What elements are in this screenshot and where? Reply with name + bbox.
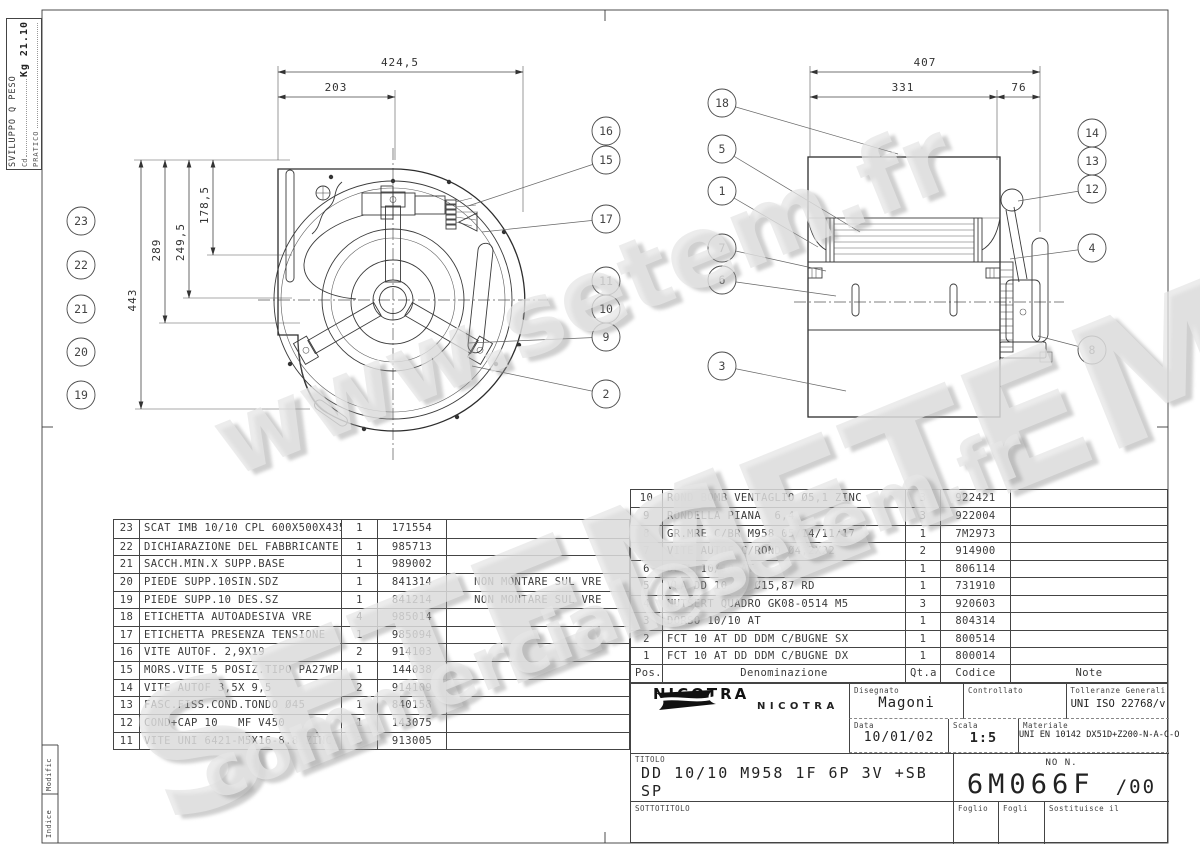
balloon: 7 [708, 234, 736, 262]
part-denominazione: FCT 10 AT DD DDM C/BUGNE SX [663, 631, 906, 647]
disegnato-label: Disegnato [850, 684, 963, 695]
part-qty: 2 [906, 543, 941, 559]
part-codice: 171554 [378, 520, 447, 538]
motor-assembly [1000, 189, 1052, 362]
svg-text:20: 20 [74, 345, 88, 359]
svg-text:10: 10 [599, 302, 613, 316]
part-note [1011, 613, 1167, 629]
part-denominazione: MORS.VITE 5 POSIZ.TIPO PA27WP [140, 662, 342, 679]
part-note [1011, 596, 1167, 612]
part-qty: 2 [342, 644, 378, 661]
parts-row: 3 DORSO 10/10 AT 1 804314 [631, 612, 1167, 629]
part-pos: 8 [631, 526, 663, 542]
part-codice: 7M2973 [941, 526, 1011, 542]
svg-text:17: 17 [599, 212, 613, 226]
part-pos: 5 [631, 578, 663, 594]
svg-text:4: 4 [1089, 241, 1096, 255]
header-note: Note [1011, 665, 1167, 681]
parts-row: 23 SCAT IMB 10/10 CPL 600X500X435 1 1715… [114, 520, 629, 538]
balloon: 9 [592, 323, 620, 351]
parts-row: 7 VITE AUTOF C/ROND Ø4,2X22 2 914900 [631, 542, 1167, 559]
balloon: 20 [67, 338, 95, 366]
part-denominazione: RONDELLA PIANA 6,4 [663, 508, 906, 524]
part-denominazione: ETICHETTA AUTOADESIVA VRE [140, 609, 342, 626]
svg-text:16: 16 [599, 124, 613, 138]
svg-text:2: 2 [603, 387, 610, 401]
scala-cell: Scala 1:5 [948, 719, 1018, 753]
svg-text:21: 21 [74, 302, 88, 316]
part-codice: 920603 [941, 596, 1011, 612]
balloon: 6 [708, 266, 736, 294]
part-qty: 2 [342, 680, 378, 697]
parts-row: 14 VITE AUTOF 3,5X 9,5 2 914109 [114, 679, 629, 697]
parts-row: 5 VLA DD 10/10 Ø15,87 RD 1 731910 [631, 577, 1167, 594]
svg-text:7: 7 [719, 241, 726, 255]
controllato-label: Controllato [964, 684, 1066, 695]
part-note: NON MONTARE SUL VRE [447, 592, 629, 609]
part-pos: 7 [631, 543, 663, 559]
balloon: 8 [1078, 336, 1106, 364]
part-note [447, 520, 629, 538]
part-pos: 14 [114, 680, 140, 697]
part-pos: 12 [114, 715, 140, 732]
part-codice: 913005 [378, 733, 447, 750]
part-qty: 1 [342, 592, 378, 609]
part-note [447, 539, 629, 556]
part-note [447, 627, 629, 644]
svg-text:12: 12 [1085, 182, 1099, 196]
part-denominazione: NUTSERT QUADRO GK08-0514 M5 [663, 596, 906, 612]
part-pos: 20 [114, 574, 140, 591]
part-pos: 22 [114, 539, 140, 556]
scala-label: Scala [949, 719, 1018, 730]
part-pos: 19 [114, 592, 140, 609]
balloon: 21 [67, 295, 95, 323]
warning-triangle-icon [459, 213, 477, 231]
part-codice: 800514 [941, 631, 1011, 647]
svg-text:3: 3 [719, 359, 726, 373]
part-qty: 3 [906, 508, 941, 524]
part-pos: 15 [114, 662, 140, 679]
part-denominazione: VITE AUTOF 3,5X 9,5 [140, 680, 342, 697]
side-view-drawing [794, 157, 1064, 417]
impeller-drum [826, 218, 982, 262]
part-note [1011, 578, 1167, 594]
svg-text:19: 19 [74, 388, 88, 402]
balloon: 2 [592, 380, 620, 408]
notes-cell [631, 801, 953, 844]
balloon: 18 [708, 89, 736, 117]
parts-row: 11 VITE UNI 6421-M5X16-8.8 ZINC. 3 91300… [114, 732, 629, 750]
data-label: Data [850, 719, 948, 730]
part-denominazione: COND+CAP 10 MF V450 [140, 715, 342, 732]
part-codice: 989002 [378, 556, 447, 573]
part-denominazione: SCAT IMB 10/10 CPL 600X500X435 [140, 520, 342, 538]
data-cell: Data 10/01/02 [849, 719, 948, 753]
side-view-dimensions: 407 331 76 [810, 56, 1040, 232]
capacitor [362, 186, 445, 219]
svg-text:8: 8 [1089, 343, 1096, 357]
svg-text:15: 15 [599, 153, 613, 167]
part-pos: 4 [631, 596, 663, 612]
part-codice: 841214 [378, 592, 447, 609]
part-denominazione: ETICHETTA PRESENZA TENSIONE [140, 627, 342, 644]
part-note [1011, 631, 1167, 647]
dim-443: 443 [126, 289, 139, 312]
part-pos: 17 [114, 627, 140, 644]
titolo-value: DD 10/10 M958 1F 6P 3V +SB SP [631, 764, 953, 802]
part-codice: 922004 [941, 508, 1011, 524]
part-note [447, 697, 629, 714]
part-qty: 1 [342, 556, 378, 573]
part-qty: 3 [342, 733, 378, 750]
svg-text:14: 14 [1085, 126, 1099, 140]
part-note [447, 680, 629, 697]
part-pos: 23 [114, 520, 140, 538]
balloon: 4 [1078, 234, 1106, 262]
part-qty: 3 [906, 596, 941, 612]
part-note [1011, 561, 1167, 577]
drawing-number: 6M066F /00 [954, 769, 1169, 800]
parts-row: 22 DICHIARAZIONE DEL FABBRICANTE 1 98571… [114, 538, 629, 556]
part-qty: 1 [342, 715, 378, 732]
dim-407: 407 [914, 56, 937, 69]
part-codice: 804314 [941, 613, 1011, 629]
motor-cable [304, 215, 364, 299]
parts-row: 12 COND+CAP 10 MF V450 1 143075 [114, 714, 629, 732]
part-denominazione: FASC.FISS.COND.TONDO Ø45 [140, 697, 342, 714]
part-qty: 1 [342, 662, 378, 679]
modific-label: Modific [45, 758, 53, 791]
part-note: NON MONTARE SUL VRE [447, 574, 629, 591]
title-block: NICOTRA NICOTRA Disegnato Magoni Control… [630, 683, 1168, 843]
callout-balloons: 16 15 17 11 10 9 2 23 22 21 20 19 18 5 1… [67, 89, 1106, 409]
part-qty: 1 [906, 526, 941, 542]
part-codice: 806114 [941, 561, 1011, 577]
part-note [1011, 508, 1167, 524]
drawing-sheet: 424,5 203 443 289 249,5 178,5 [0, 0, 1200, 849]
dim-331: 331 [892, 81, 915, 94]
part-pos: 18 [114, 609, 140, 626]
svg-text:6: 6 [719, 273, 726, 287]
part-denominazione: ROND BOMB VENTAGLIO Ø5,1 ZINC [663, 490, 906, 507]
drawing-number-label: NO N. [954, 754, 1169, 768]
cd-label: Cd [21, 159, 29, 167]
part-note [447, 609, 629, 626]
svg-text:22: 22 [74, 258, 88, 272]
parts-row: 2 FCT 10 AT DD DDM C/BUGNE SX 1 800514 [631, 630, 1167, 647]
part-qty: 1 [906, 631, 941, 647]
part-denominazione: SACCH.MIN.X SUPP.BASE [140, 556, 342, 573]
scala-value: 1:5 [949, 730, 1018, 746]
part-denominazione: VLA DD 10/10 Ø15,87 RD [663, 578, 906, 594]
part-note [447, 644, 629, 661]
part-codice: 985713 [378, 539, 447, 556]
part-qty: 1 [906, 613, 941, 629]
fogli-cell: Fogli [998, 801, 1044, 844]
pratico-label: PRATICO [32, 130, 40, 167]
part-pos: 11 [114, 733, 140, 750]
dim-178: 178,5 [198, 186, 211, 224]
svg-text:18: 18 [715, 96, 729, 110]
balloon: 15 [592, 146, 620, 174]
weight-info-text: SVILUPPO Q PESO CdKg 21.10 PRATICO [7, 19, 41, 169]
part-denominazione: VITE UNI 6421-M5X16-8.8 ZINC. [140, 733, 342, 750]
balloon: 11 [592, 267, 620, 295]
parts-row: 9 RONDELLA PIANA 6,4 3 922004 [631, 507, 1167, 524]
part-qty: 4 [342, 609, 378, 626]
parts-row: 20 PIEDE SUPP.10SIN.SDZ 1 841314 NON MON… [114, 573, 629, 591]
balloon: 3 [708, 352, 736, 380]
materiale-cell: Materiale UNI EN 10142 DX51D+Z200-N-A-C-… [1018, 719, 1169, 753]
part-codice: 841314 [378, 574, 447, 591]
parts-table-left: 23 SCAT IMB 10/10 CPL 600X500X435 1 1715… [113, 519, 630, 750]
part-codice: 840158 [378, 697, 447, 714]
parts-row: 21 SACCH.MIN.X SUPP.BASE 1 989002 [114, 555, 629, 573]
part-qty: 1 [906, 648, 941, 664]
parts-row: 18 ETICHETTA AUTOADESIVA VRE 4 985014 [114, 608, 629, 626]
part-note [1011, 648, 1167, 664]
part-codice: 985014 [378, 609, 447, 626]
weight-value: Kg 21.10 [19, 21, 30, 77]
part-pos: 21 [114, 556, 140, 573]
indice-label: Indice [45, 810, 53, 838]
tolleranze-value: UNI ISO 22768/v [1067, 698, 1169, 710]
dim-424: 424,5 [381, 56, 419, 69]
balloon: 19 [67, 381, 95, 409]
header-codice: Codice [941, 665, 1011, 681]
balloon: 14 [1078, 119, 1106, 147]
data-value: 10/01/02 [850, 730, 948, 745]
disegnato-cell: Disegnato Magoni [849, 684, 963, 719]
part-codice: 800014 [941, 648, 1011, 664]
part-codice: 922421 [941, 490, 1011, 507]
part-qty: 1 [906, 561, 941, 577]
part-pos: 10 [631, 490, 663, 507]
parts-row: 8 GR.MRE C/BR M958 05/14/11/17 1 7M2973 [631, 525, 1167, 542]
part-codice: 731910 [941, 578, 1011, 594]
balloon: 23 [67, 207, 95, 235]
revision-number: /00 [1116, 776, 1156, 798]
part-denominazione: PIEDE SUPP.10 DES.SZ [140, 592, 342, 609]
part-pos: 3 [631, 613, 663, 629]
svg-text:11: 11 [599, 274, 613, 288]
balloon: 17 [592, 205, 620, 233]
svg-text:13: 13 [1085, 154, 1099, 168]
part-denominazione: PIEDE SUPP.10SIN.SDZ [140, 574, 342, 591]
parts-row: 15 MORS.VITE 5 POSIZ.TIPO PA27WP 1 14403… [114, 661, 629, 679]
dim-289: 289 [150, 239, 163, 262]
part-pos: 1 [631, 648, 663, 664]
nicotra-secondary-wordmark: NICOTRA [757, 701, 839, 712]
svg-text:5: 5 [719, 142, 726, 156]
parts-row: 1 FCT 10 AT DD DDM C/BUGNE DX 1 800014 [631, 647, 1167, 664]
balloon: 12 [1078, 175, 1106, 203]
controllato-cell: Controllato [963, 684, 1066, 719]
part-denominazione: DICHIARAZIONE DEL FABBRICANTE [140, 539, 342, 556]
part-qty: 1 [342, 520, 378, 538]
parts-row: 13 FASC.FISS.COND.TONDO Ø45 1 840158 [114, 696, 629, 714]
parts-row: 4 NUTSERT QUADRO GK08-0514 M5 3 920603 [631, 595, 1167, 612]
part-pos: 9 [631, 508, 663, 524]
foglio-label: Foglio [954, 802, 998, 813]
balloon: 10 [592, 295, 620, 323]
parts-row: 17 ETICHETTA PRESENZA TENSIONE 1 985094 [114, 626, 629, 644]
balloon: 22 [67, 251, 95, 279]
part-codice: 144038 [378, 662, 447, 679]
part-note [447, 662, 629, 679]
parts-row: 6 DEFL 10/10 AT 1 806114 [631, 560, 1167, 577]
part-note [447, 715, 629, 732]
part-qty: 1 [342, 697, 378, 714]
part-denominazione: DEFL 10/10 AT [663, 561, 906, 577]
balloon: 1 [708, 177, 736, 205]
balloon: 5 [708, 135, 736, 163]
tolleranze-label: Tolleranze Generali [1067, 684, 1169, 695]
part-note [1011, 490, 1167, 507]
dim-203: 203 [325, 81, 348, 94]
part-note [447, 733, 629, 750]
part-note [447, 556, 629, 573]
part-codice: 914900 [941, 543, 1011, 559]
parts-row: 19 PIEDE SUPP.10 DES.SZ 1 841214 NON MON… [114, 591, 629, 609]
part-note [1011, 543, 1167, 559]
logo-cell: NICOTRA NICOTRA [631, 684, 849, 753]
part-denominazione: DORSO 10/10 AT [663, 613, 906, 629]
parts-row: 10 ROND BOMB VENTAGLIO Ø5,1 ZINC 3 92242… [631, 490, 1167, 507]
dim-76: 76 [1011, 81, 1026, 94]
svg-text:1: 1 [719, 184, 726, 198]
part-codice: 985094 [378, 627, 447, 644]
sostituisce-cell: Sostituisce il [1044, 801, 1169, 844]
header-qty: Qt.a [906, 665, 941, 681]
titolo-label: TITOLO [631, 754, 953, 764]
fogli-label: Fogli [999, 802, 1044, 813]
parts-header-row: Pos. Denominazione Qt.a Codice Note [631, 664, 1167, 681]
part-denominazione: VITE AUTOF C/ROND Ø4,2X22 [663, 543, 906, 559]
part-note [1011, 526, 1167, 542]
svg-text:23: 23 [74, 214, 88, 228]
dim-249: 249,5 [174, 223, 187, 261]
part-denominazione: VITE AUTOF. 2,9X19 [140, 644, 342, 661]
callout-leaders [468, 103, 1092, 394]
part-denominazione: FCT 10 AT DD DDM C/BUGNE DX [663, 648, 906, 664]
part-qty: 1 [342, 574, 378, 591]
part-codice: 914103 [378, 644, 447, 661]
header-pos: Pos. [631, 665, 663, 681]
nicotra-flag-icon [655, 690, 717, 716]
balloon: 16 [592, 117, 620, 145]
screw-mark [316, 186, 330, 200]
part-pos: 6 [631, 561, 663, 577]
materiale-value: UNI EN 10142 DX51D+Z200-N-A-C-O [1019, 730, 1169, 740]
front-view-drawing [258, 148, 548, 462]
foglio-cell: Foglio [953, 801, 998, 844]
parts-table-right: 10 ROND BOMB VENTAGLIO Ø5,1 ZINC 3 92242… [630, 489, 1168, 683]
part-qty: 3 [906, 490, 941, 507]
parts-row: 16 VITE AUTOF. 2,9X19 2 914103 [114, 643, 629, 661]
part-qty: 1 [342, 539, 378, 556]
materiale-label: Materiale [1019, 719, 1169, 730]
header-denominazione: Denominazione [663, 665, 906, 681]
drawing-number-cell: NO N. 6M066F /00 [953, 753, 1169, 801]
tolleranze-cell: Tolleranze Generali UNI ISO 22768/v [1066, 684, 1169, 719]
part-pos: 2 [631, 631, 663, 647]
part-qty: 1 [906, 578, 941, 594]
titolo-cell: TITOLO DD 10/10 M958 1F 6P 3V +SB SP SOT… [631, 753, 953, 801]
part-pos: 13 [114, 697, 140, 714]
part-qty: 1 [342, 627, 378, 644]
part-pos: 16 [114, 644, 140, 661]
sostituisce-label: Sostituisce il [1045, 802, 1169, 813]
part-denominazione: GR.MRE C/BR M958 05/14/11/17 [663, 526, 906, 542]
disegnato-value: Magoni [850, 695, 963, 711]
balloon: 13 [1078, 147, 1106, 175]
svg-text:9: 9 [603, 330, 610, 344]
sviluppo-peso-label: SVILUPPO Q PESO [8, 21, 18, 167]
part-codice: 914109 [378, 680, 447, 697]
part-codice: 143075 [378, 715, 447, 732]
